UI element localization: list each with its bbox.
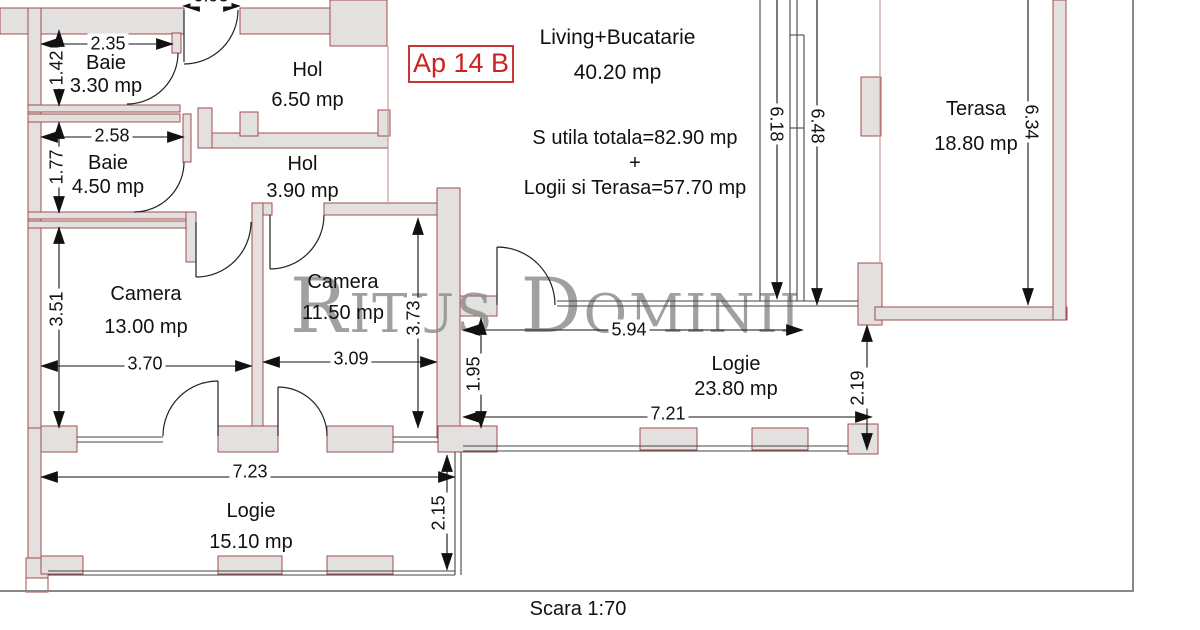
room-area: 6.50 mp (250, 85, 365, 115)
dimension-label: 6.48 (807, 105, 828, 146)
room-name: Baie (60, 151, 156, 175)
dimension-label: 2.19 (848, 367, 869, 408)
room-name: Hol (250, 55, 365, 85)
room-label-terasa: Terasa 18.80 mp (912, 92, 1040, 162)
dimension-label: 0.93 (190, 0, 231, 7)
camera1-door (196, 222, 251, 277)
room-label-hol2: Hol 3.90 mp (245, 151, 360, 205)
dimension-label: 7.23 (229, 462, 270, 483)
scale-note: Scara 1:70 (488, 598, 668, 621)
room-area: 11.50 mp (283, 298, 403, 329)
room-label-logie1: Logie 23.80 mp (676, 352, 796, 402)
room-name: Living+Bucatarie (525, 20, 710, 55)
floor-plan: Ritus Dominii (0, 0, 1200, 630)
summary-line-1: S utila totala=82.90 mp (495, 126, 775, 151)
room-area: 15.10 mp (190, 527, 312, 558)
room-name: Camera (283, 267, 403, 298)
balcony-door-2 (278, 387, 327, 436)
entry-door (184, 10, 238, 64)
room-name: Hol (245, 151, 360, 178)
dimension-label: 2.58 (91, 126, 132, 147)
room-label-living: Living+Bucatarie 40.20 mp (525, 20, 710, 90)
balcony-door-1 (163, 381, 218, 436)
room-area: 4.50 mp (60, 175, 156, 199)
room-label-logie2: Logie 15.10 mp (190, 496, 312, 558)
dimension-label: 3.09 (330, 349, 371, 370)
room-name: Logie (190, 496, 312, 527)
area-summary: S utila totala=82.90 mp + Logii si Teras… (495, 126, 775, 201)
dimension-label: 7.21 (647, 404, 688, 425)
room-label-baie1: Baie 3.30 mp (58, 52, 154, 98)
room-name: Baie (58, 52, 154, 75)
room-label-camera1: Camera 13.00 mp (86, 278, 206, 344)
dimension-label: 5.94 (608, 320, 649, 341)
summary-line-2: Logii si Terasa=57.70 mp (495, 176, 775, 201)
room-name: Terasa (912, 92, 1040, 127)
camera2-door (270, 215, 324, 269)
summary-plus: + (495, 151, 775, 176)
room-area: 3.90 mp (245, 178, 360, 205)
room-label-baie2: Baie 4.50 mp (60, 151, 156, 199)
dimension-label: 3.51 (47, 288, 68, 329)
room-area: 3.30 mp (58, 75, 154, 98)
dimension-label: 3.73 (404, 297, 425, 338)
room-area: 13.00 mp (86, 311, 206, 344)
apartment-id-box: Ap 14 B (408, 45, 514, 83)
dimension-label: 1.95 (464, 353, 485, 394)
room-label-camera2: Camera 11.50 mp (283, 267, 403, 329)
dimension-label: 3.70 (124, 354, 165, 375)
room-name: Logie (676, 352, 796, 377)
dimension-label: 2.15 (429, 492, 450, 533)
room-area: 23.80 mp (676, 377, 796, 402)
logie-door (497, 247, 555, 305)
room-area: 18.80 mp (912, 127, 1040, 162)
room-area: 40.20 mp (525, 55, 710, 90)
room-name: Camera (86, 278, 206, 311)
room-label-hol1: Hol 6.50 mp (250, 55, 365, 115)
